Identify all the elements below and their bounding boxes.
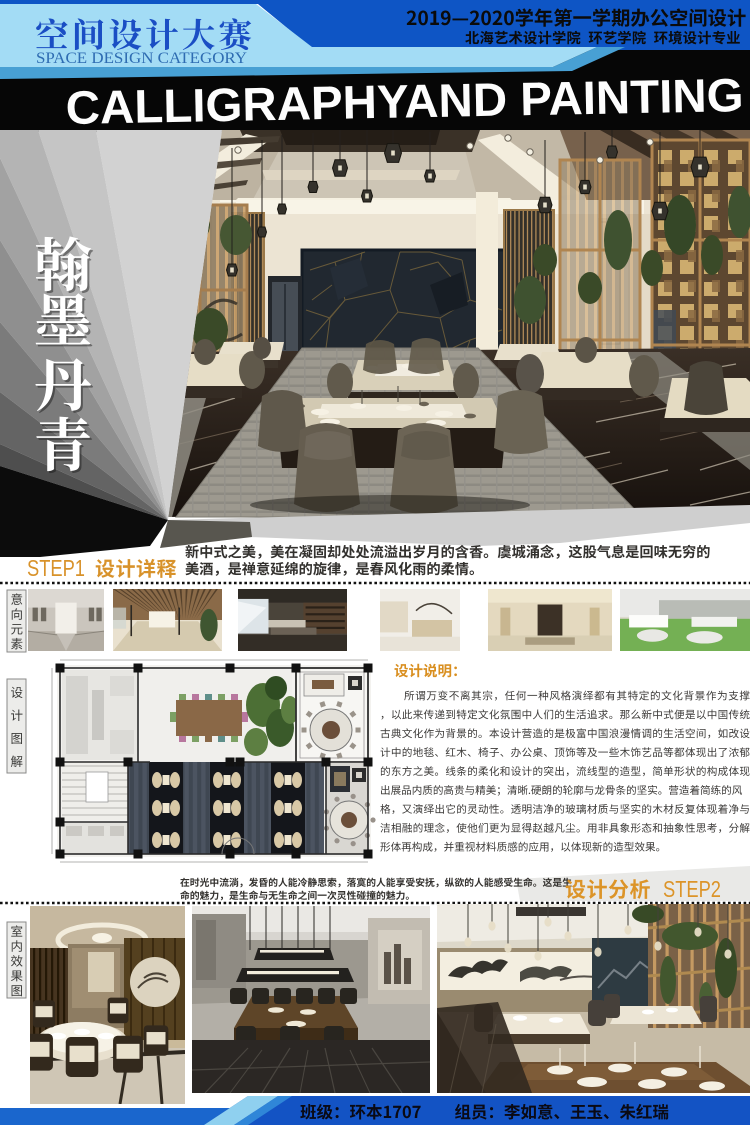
svg-text:STEP2: STEP2 (663, 876, 721, 902)
svg-text:SPACE DESIGN CATEGORY: SPACE DESIGN CATEGORY (36, 50, 247, 67)
svg-text:STEP1: STEP1 (27, 555, 85, 581)
